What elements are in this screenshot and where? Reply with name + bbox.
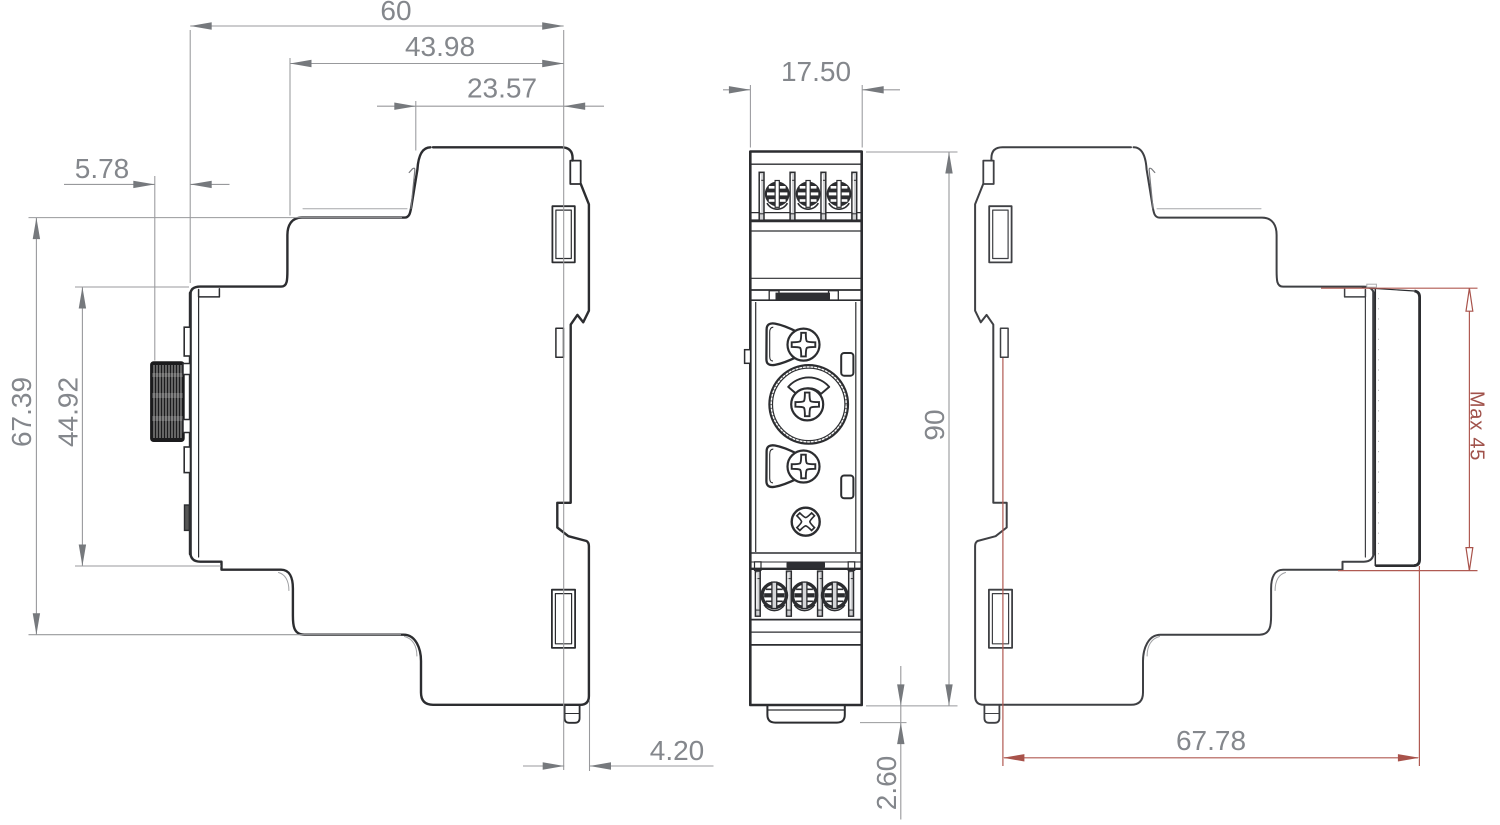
svg-text:67.39: 67.39 [6, 377, 37, 447]
svg-text:44.92: 44.92 [53, 377, 84, 447]
svg-text:60: 60 [380, 0, 411, 26]
svg-text:67.78: 67.78 [1176, 725, 1246, 756]
svg-text:90: 90 [919, 409, 950, 440]
svg-text:23.57: 23.57 [467, 73, 537, 104]
svg-text:5.78: 5.78 [75, 153, 130, 184]
svg-text:Max 45: Max 45 [1466, 391, 1488, 461]
svg-text:17.50: 17.50 [781, 56, 851, 87]
svg-text:43.98: 43.98 [405, 31, 475, 62]
svg-text:2.60: 2.60 [871, 756, 902, 811]
svg-text:4.20: 4.20 [650, 735, 705, 766]
